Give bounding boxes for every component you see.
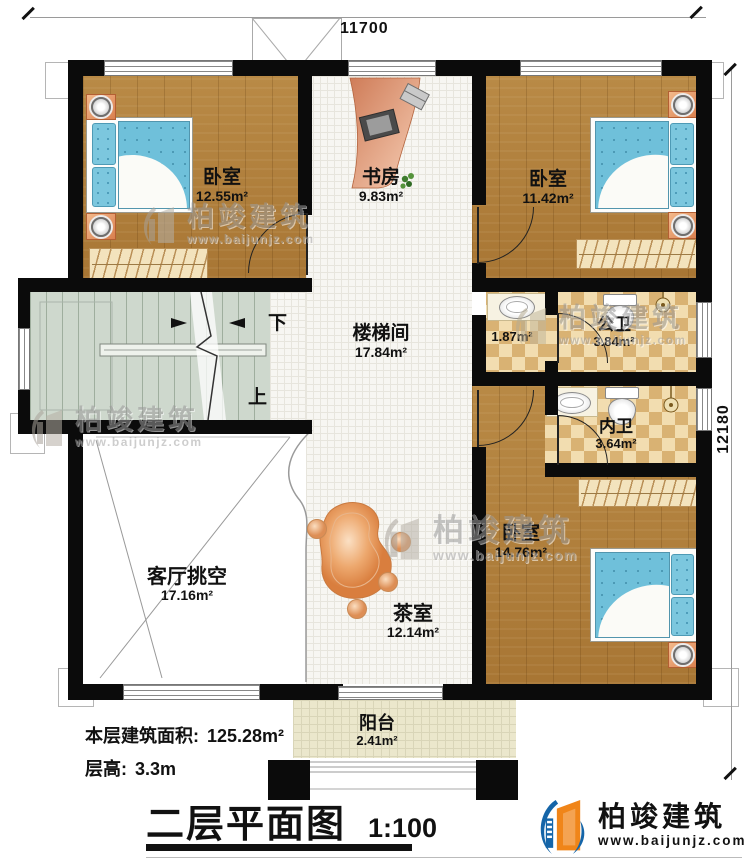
wash-basin bbox=[553, 392, 591, 414]
stool bbox=[308, 520, 327, 539]
room-area: 17.84m² bbox=[352, 345, 409, 360]
nightstand bbox=[86, 213, 116, 240]
wardrobe bbox=[89, 248, 208, 280]
brand-name: 柏竣建筑 bbox=[598, 803, 747, 831]
drawing-title: 二层平面图 bbox=[146, 793, 346, 848]
wall bbox=[233, 60, 348, 76]
dimension-right-value: 12180 bbox=[715, 399, 733, 459]
nightstand bbox=[668, 91, 698, 118]
stairs-down-label: 下 bbox=[268, 308, 287, 335]
lamp-icon bbox=[91, 97, 111, 117]
floor-height-value: 3.3m bbox=[135, 759, 176, 780]
stairs-up-label: 上 bbox=[248, 382, 267, 409]
window bbox=[123, 684, 260, 700]
room-area: 3.84m² bbox=[593, 335, 634, 349]
room-label-study: 书房 9.83m² bbox=[359, 168, 403, 204]
wall bbox=[68, 684, 123, 700]
bed bbox=[590, 548, 698, 642]
room-label-balcony: 阳台 2.41m² bbox=[356, 714, 397, 748]
room-area: 9.83m² bbox=[359, 189, 403, 204]
window bbox=[696, 388, 712, 431]
wall bbox=[545, 463, 712, 477]
room-area: 14.76m² bbox=[495, 545, 547, 560]
room-label-private-bath: 内卫 3.64m² bbox=[595, 418, 636, 451]
lamp-icon bbox=[673, 645, 693, 665]
door-leaf bbox=[477, 390, 479, 447]
nightstand bbox=[86, 94, 116, 120]
stool bbox=[348, 600, 367, 619]
lamp-icon bbox=[91, 217, 111, 237]
room-label-bedroom-bottom-right: 卧室 14.76m² bbox=[495, 524, 547, 560]
bed bbox=[590, 117, 698, 213]
nightstand bbox=[668, 212, 698, 239]
mattress bbox=[595, 121, 669, 209]
wall bbox=[436, 60, 520, 76]
pillow bbox=[92, 123, 116, 165]
brand-logo: 柏竣建筑 www.baijunjz.com bbox=[536, 796, 747, 858]
wall bbox=[472, 315, 486, 372]
floor-height-label: 层高: bbox=[85, 755, 127, 781]
lamp-icon bbox=[673, 216, 693, 236]
wardrobe bbox=[576, 239, 698, 269]
room-name: 卧室 bbox=[522, 170, 573, 191]
wall bbox=[68, 434, 83, 700]
window bbox=[104, 60, 233, 76]
room-label-bedroom-top-right: 卧室 11.42m² bbox=[522, 170, 573, 206]
brand-site: www.baijunjz.com bbox=[598, 831, 747, 851]
pillow bbox=[670, 167, 694, 207]
pillow bbox=[671, 554, 694, 595]
brand-logo-icon bbox=[536, 796, 590, 858]
wall bbox=[298, 76, 312, 215]
wardrobe bbox=[578, 479, 698, 507]
floor-height-line: 层高: 3.3m bbox=[85, 755, 176, 781]
wall bbox=[545, 292, 558, 315]
wall bbox=[68, 278, 312, 292]
wall bbox=[476, 760, 518, 800]
lamp-icon bbox=[673, 95, 693, 115]
dimension-top-value: 11700 bbox=[340, 20, 389, 38]
title-underline bbox=[146, 844, 412, 851]
void-diagonal bbox=[96, 440, 162, 678]
door-leaf bbox=[306, 213, 308, 275]
floor-area-value: 125.28m² bbox=[207, 726, 284, 747]
room-area: 12.14m² bbox=[387, 625, 439, 640]
bed bbox=[86, 117, 193, 213]
room-name: 公卫 bbox=[593, 316, 634, 335]
dimension-line-top bbox=[30, 17, 706, 18]
room-name: 茶室 bbox=[387, 603, 439, 625]
room-name: 书房 bbox=[359, 168, 403, 189]
room-label-tea-room: 茶室 12.14m² bbox=[387, 603, 439, 640]
room-name: 客厅挑空 bbox=[147, 566, 227, 588]
floor-plan: 卧室 12.55m² 书房 9.83m² 卧室 11.42m² 楼梯间 17.8… bbox=[0, 0, 750, 868]
floor-area-line: 本层建筑面积: 125.28m² bbox=[85, 722, 284, 748]
window bbox=[520, 60, 662, 76]
stair-arrow-left bbox=[229, 318, 245, 328]
stool bbox=[392, 533, 411, 552]
room-name: 卧室 bbox=[196, 168, 248, 189]
sliding-door bbox=[338, 686, 443, 700]
wall bbox=[472, 76, 486, 205]
tea-room-curve bbox=[289, 430, 312, 682]
room-label-bedroom-top-left: 卧室 12.55m² bbox=[196, 168, 248, 204]
room-name: 内卫 bbox=[595, 418, 636, 437]
mattress bbox=[595, 552, 670, 638]
room-area: 12.55m² bbox=[196, 189, 248, 204]
stool bbox=[379, 573, 398, 592]
drawing-title-block: 二层平面图 1:100 bbox=[146, 793, 437, 848]
mattress bbox=[118, 121, 190, 209]
wall bbox=[18, 278, 30, 328]
bed-sheet bbox=[595, 143, 669, 209]
room-area: 2.41m² bbox=[356, 734, 397, 748]
floor-area-label: 本层建筑面积: bbox=[85, 722, 199, 748]
room-area: 3.64m² bbox=[595, 437, 636, 451]
pillow bbox=[671, 597, 694, 636]
nightstand bbox=[668, 642, 698, 668]
pillow bbox=[670, 123, 694, 165]
stair-arrow-right bbox=[171, 318, 187, 328]
shower-icon bbox=[656, 292, 670, 312]
wash-basin bbox=[499, 296, 535, 319]
drawing-scale: 1:100 bbox=[368, 813, 437, 844]
room-area: 1.87m² bbox=[491, 330, 532, 344]
pillow bbox=[92, 167, 116, 207]
window bbox=[18, 328, 30, 390]
room-label-living-void: 客厅挑空 17.16m² bbox=[147, 566, 227, 603]
bed-sheet bbox=[595, 573, 670, 638]
wall bbox=[260, 684, 343, 700]
shower-icon bbox=[664, 386, 678, 412]
bed-sheet bbox=[118, 143, 190, 209]
door-leaf bbox=[557, 313, 559, 363]
door-leaf bbox=[477, 207, 479, 264]
wall bbox=[472, 372, 712, 386]
wall bbox=[443, 684, 712, 700]
wall bbox=[68, 60, 83, 290]
wall bbox=[696, 60, 712, 302]
room-name: 卧室 bbox=[495, 524, 547, 545]
room-label-stair-hall: 楼梯间 17.84m² bbox=[352, 324, 409, 360]
wall bbox=[472, 447, 486, 684]
wall bbox=[545, 386, 558, 415]
window bbox=[348, 60, 436, 76]
window bbox=[696, 302, 712, 358]
room-label-public-bath: 公卫 3.84m² bbox=[593, 316, 634, 349]
room-name: 楼梯间 bbox=[352, 324, 409, 345]
room-area: 17.16m² bbox=[147, 588, 227, 603]
door-leaf bbox=[557, 415, 559, 465]
room-label-wash-area: 1.87m² bbox=[491, 330, 532, 344]
room-area: 11.42m² bbox=[522, 191, 573, 206]
wall bbox=[18, 420, 312, 434]
wall bbox=[472, 278, 712, 292]
room-name: 阳台 bbox=[356, 714, 397, 734]
